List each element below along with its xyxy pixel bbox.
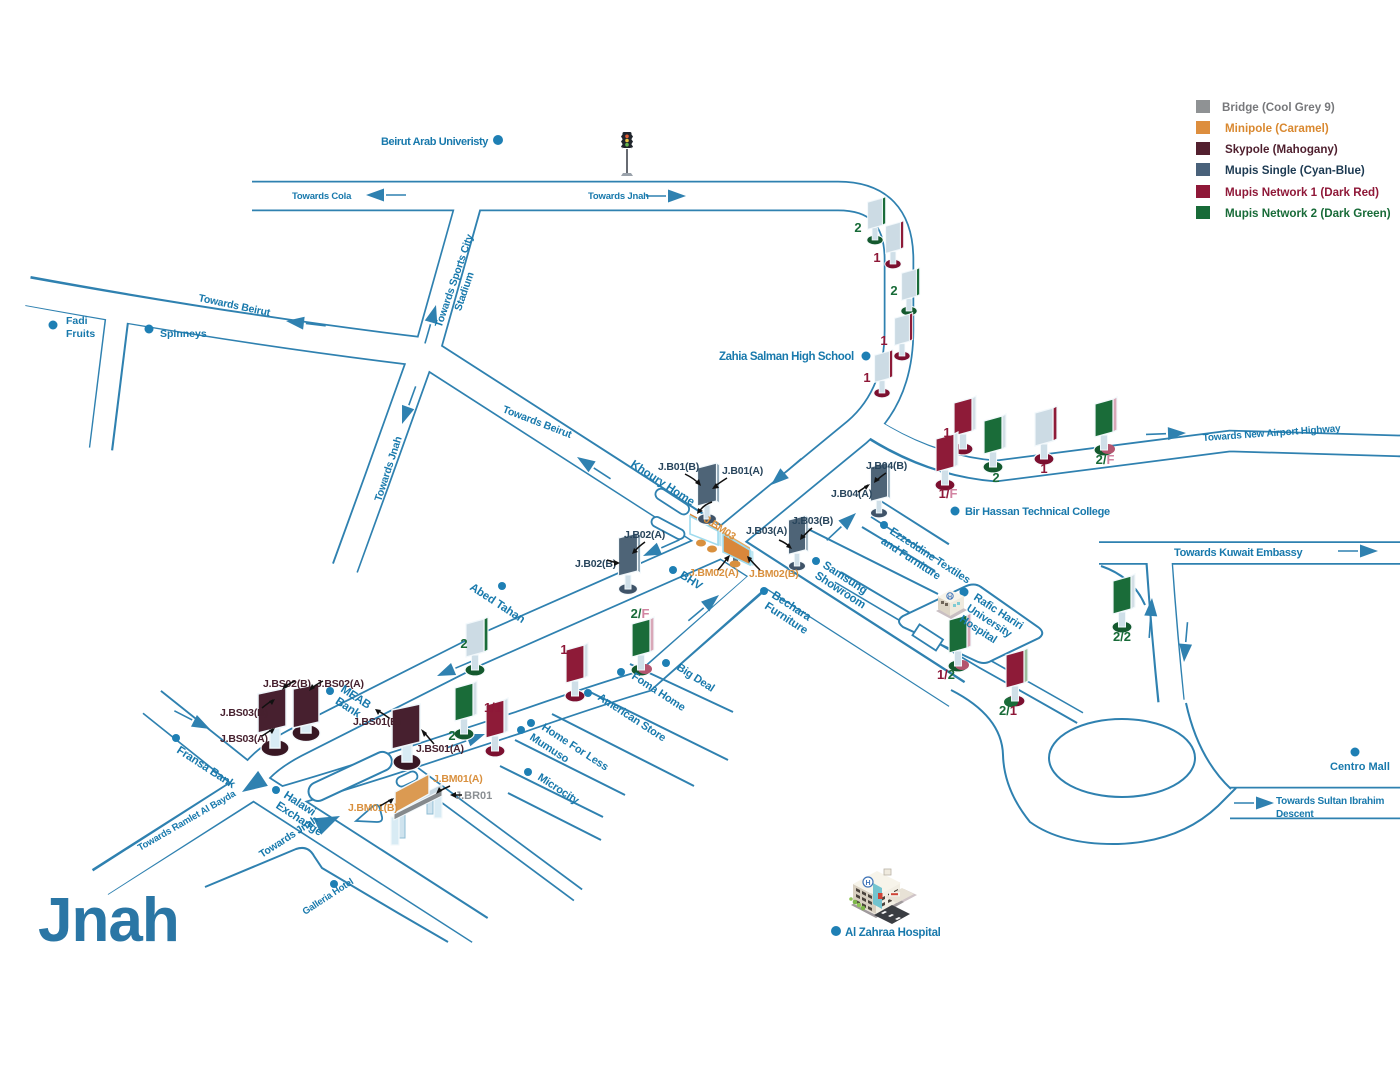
svg-text:1/2: 1/2 [937, 667, 955, 682]
svg-text:J.BS02(B): J.BS02(B) [263, 678, 311, 690]
svg-text:J.B04(A): J.B04(A) [831, 488, 872, 500]
svg-text:2: 2 [890, 283, 897, 298]
svg-text:J.BS03(A): J.BS03(A) [220, 733, 268, 745]
svg-text:J.BS03(B): J.BS03(B) [220, 707, 268, 719]
svg-text:Bridge (Cool Grey 9): Bridge (Cool Grey 9) [1222, 101, 1335, 114]
svg-text:Mupis Single (Cyan-Blue): Mupis Single (Cyan-Blue) [1225, 164, 1365, 177]
svg-text:J.B01(B): J.B01(B) [658, 461, 699, 473]
svg-text:Jnah: Jnah [38, 886, 179, 955]
svg-text:2: 2 [854, 220, 861, 235]
svg-text:2/1: 2/1 [999, 703, 1017, 718]
svg-text:1/F: 1/F [939, 486, 958, 501]
svg-text:J.B01(A): J.B01(A) [722, 465, 763, 477]
svg-text:J.B02(A): J.B02(A) [624, 529, 665, 541]
svg-text:2: 2 [992, 470, 999, 485]
svg-text:2: 2 [448, 728, 455, 743]
svg-text:H: H [948, 595, 952, 601]
svg-text:J.B02(B): J.B02(B) [575, 558, 616, 570]
svg-text:2/2: 2/2 [1113, 629, 1131, 644]
svg-text:1: 1 [863, 370, 870, 385]
svg-text:Centro Mall: Centro Mall [1330, 761, 1390, 773]
svg-text:Zahia Salman High School: Zahia Salman High School [719, 351, 854, 363]
svg-text:Bir Hassan Technical College: Bir Hassan Technical College [965, 506, 1110, 518]
svg-text:J.B03(A): J.B03(A) [746, 525, 787, 537]
svg-text:J.BR01: J.BR01 [455, 790, 492, 802]
svg-text:Mupis Network 1 (Dark Red): Mupis Network 1 (Dark Red) [1225, 186, 1379, 199]
svg-text:1: 1 [1040, 461, 1047, 476]
svg-text:2: 2 [460, 636, 467, 651]
svg-text:J.BS01(A): J.BS01(A) [416, 743, 464, 755]
svg-text:1: 1 [943, 425, 950, 440]
svg-text:H: H [865, 880, 870, 887]
svg-text:J.BM02(B): J.BM02(B) [749, 568, 799, 580]
svg-text:Al Zahraa Hospital: Al Zahraa Hospital [845, 927, 941, 939]
svg-text:2/F: 2/F [1096, 452, 1115, 467]
svg-text:Mupis Network 2 (Dark Green): Mupis Network 2 (Dark Green) [1225, 207, 1391, 220]
svg-text:Beirut Arab Univeristy: Beirut Arab Univeristy [381, 136, 489, 148]
svg-text:Minipole (Caramel): Minipole (Caramel) [1225, 122, 1329, 135]
svg-text:Towards Kuwait Embassy: Towards Kuwait Embassy [1174, 547, 1303, 559]
svg-text:Spinneys: Spinneys [160, 328, 207, 340]
svg-text:J.BS01(B): J.BS01(B) [353, 716, 401, 728]
svg-text:2/F: 2/F [631, 606, 650, 621]
svg-text:J.BM01(B): J.BM01(B) [348, 802, 398, 814]
svg-text:1: 1 [560, 642, 567, 657]
svg-text:1: 1 [873, 250, 880, 265]
svg-text:J.BM01(A): J.BM01(A) [433, 773, 483, 785]
svg-text:J.BS02(A): J.BS02(A) [316, 678, 364, 690]
svg-text:Towards Cola: Towards Cola [292, 191, 352, 202]
svg-text:1: 1 [880, 333, 887, 348]
svg-text:J.B04(B): J.B04(B) [866, 460, 907, 472]
svg-text:J.B03(B): J.B03(B) [792, 515, 833, 527]
svg-text:Towards Jnah: Towards Jnah [588, 191, 649, 202]
svg-text:Skypole (Mahogany): Skypole (Mahogany) [1225, 143, 1338, 156]
svg-text:1/1: 1/1 [484, 700, 502, 715]
